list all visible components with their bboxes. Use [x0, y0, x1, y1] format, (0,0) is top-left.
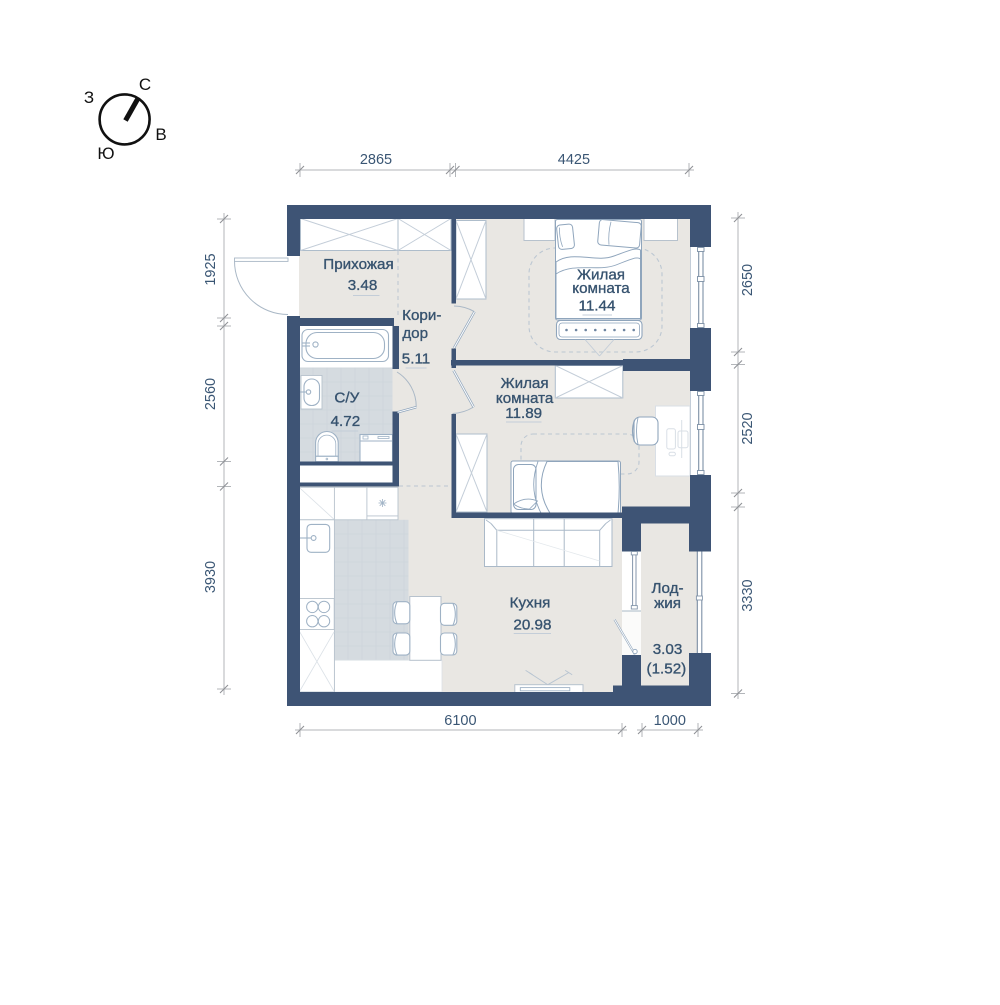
svg-text:20.98: 20.98 [513, 617, 551, 634]
svg-text:3.03: 3.03 [653, 641, 683, 658]
svg-text:комната: комната [572, 280, 630, 297]
svg-text:В: В [155, 125, 166, 144]
svg-text:2520: 2520 [740, 412, 756, 444]
svg-text:5.11: 5.11 [402, 351, 430, 368]
svg-text:3330: 3330 [740, 579, 756, 611]
svg-text:4.72: 4.72 [331, 413, 361, 430]
svg-text:3.48: 3.48 [348, 277, 378, 294]
svg-text:З: З [84, 88, 94, 107]
svg-text:С/У: С/У [334, 390, 359, 407]
svg-text:1000: 1000 [654, 713, 686, 729]
svg-text:Прихожая: Прихожая [323, 256, 393, 273]
svg-text:дор: дор [402, 325, 428, 342]
svg-text:(1.52): (1.52) [647, 661, 687, 678]
svg-text:С: С [139, 75, 151, 94]
svg-text:2865: 2865 [360, 152, 392, 168]
svg-text:2560: 2560 [203, 378, 219, 410]
svg-text:1925: 1925 [203, 253, 219, 285]
svg-text:жия: жия [654, 595, 681, 612]
svg-text:Кухня: Кухня [510, 595, 551, 612]
svg-text:6100: 6100 [444, 713, 476, 729]
svg-text:2650: 2650 [740, 264, 756, 296]
svg-text:11.44: 11.44 [579, 298, 616, 315]
svg-text:11.89: 11.89 [505, 405, 542, 422]
svg-text:Ю: Ю [97, 144, 114, 163]
svg-text:4425: 4425 [558, 152, 590, 168]
svg-text:Кори-: Кори- [402, 307, 441, 324]
svg-text:3930: 3930 [203, 561, 219, 593]
